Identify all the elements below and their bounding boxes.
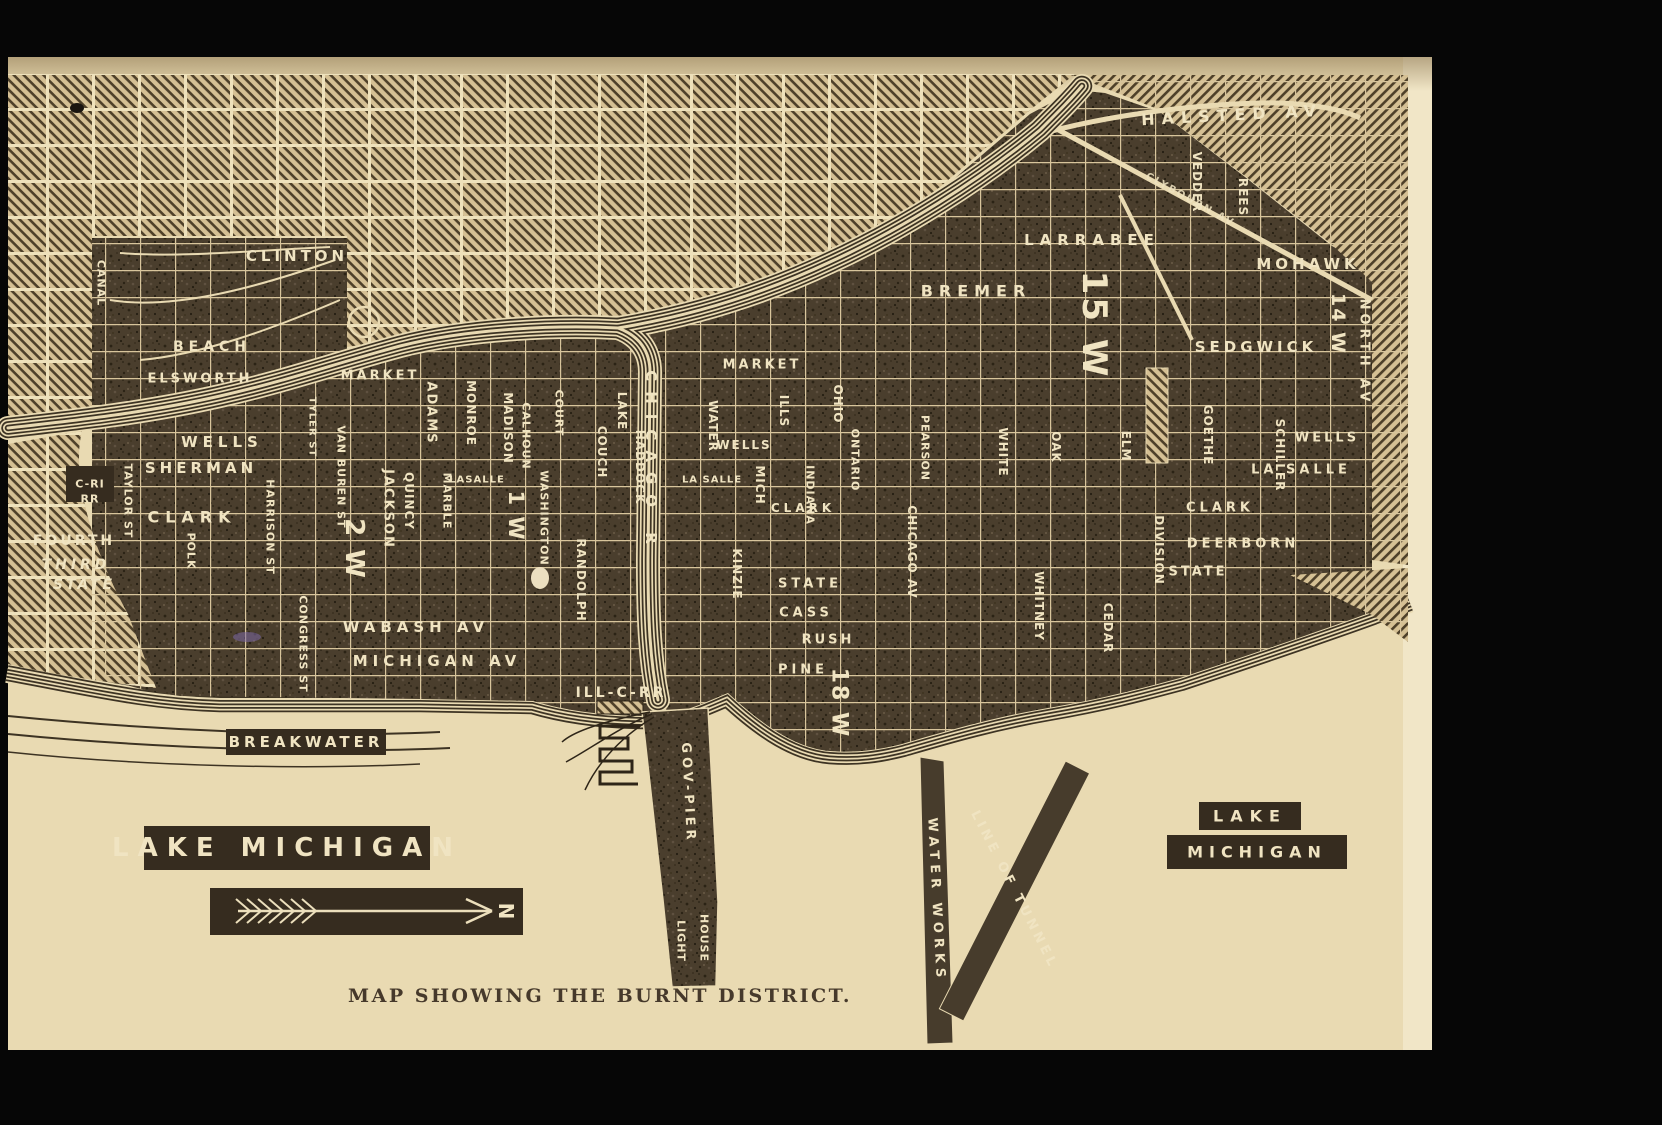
map-label-text: HOUSE xyxy=(698,914,711,962)
map-label-text: CALHOUN xyxy=(520,402,533,469)
map-label-michigan-ne: MICHIGAN xyxy=(1167,835,1347,869)
map-label-water: WATER xyxy=(706,400,720,452)
map-label-rees: REES xyxy=(1236,178,1250,216)
map-label-text: BREAKWATER xyxy=(229,733,384,751)
map-label-whitney: WHITNEY xyxy=(1032,571,1046,641)
map-label-state-west: STATE xyxy=(53,577,115,593)
map-label-text: QUINCY xyxy=(402,472,416,530)
map-label-ward-15: 15 W xyxy=(1074,271,1114,380)
map-label-wabash-av: WABASH AV xyxy=(343,618,489,636)
map-label-adams: ADAMS xyxy=(424,381,439,444)
map-label-text: C-RI xyxy=(75,478,104,491)
map-label-text: STATE xyxy=(778,577,842,592)
map-label-lake-ne: LAKE xyxy=(1199,802,1301,830)
map-label-ill-c-rr: ILL-C-RR xyxy=(576,685,667,701)
map-label-beach: BEACH xyxy=(173,339,251,355)
map-label-text: ONTARIO xyxy=(849,429,862,492)
map-label-text: WASHINGTON xyxy=(538,470,551,565)
railroad-depot-hatch xyxy=(597,701,643,714)
map-label-text: CLINTON xyxy=(246,247,348,265)
map-label-third: THIRD xyxy=(42,557,111,573)
map-label-pearson: PEARSON xyxy=(919,415,932,481)
map-label-mich: MICH xyxy=(753,465,767,504)
map-label-indiana: INDIANA xyxy=(804,465,817,525)
map-label-text: WATER xyxy=(706,400,720,452)
map-label-rush: RUSH xyxy=(802,633,855,648)
map-label-text: RR xyxy=(81,493,100,506)
map-label-text: BREMER xyxy=(921,282,1032,301)
map-label-cedar: CEDAR xyxy=(1101,603,1115,654)
map-label-mohawk: MOHAWK xyxy=(1256,255,1359,273)
map-label-kinzie: KINZIE xyxy=(730,548,744,599)
map-label-division: DIVISION xyxy=(1152,515,1166,585)
map-label-lasalle-south: LASALLE xyxy=(449,475,505,486)
map-label-chicago-av: CHICAGO AV xyxy=(905,505,919,598)
burnt-district-map: CLINTONBEACHELSWORTHMARKETWELLSSHERMANCL… xyxy=(0,0,1662,1125)
map-label-washington: WASHINGTON xyxy=(538,470,551,565)
map-label-couch: COUCH xyxy=(595,426,609,479)
map-label-text: 15 W xyxy=(1074,271,1114,380)
map-label-state-north: STATE xyxy=(1168,565,1227,580)
map-label-text: LAKE MICHIGAN xyxy=(112,833,462,863)
map-label-jackson: JACKSON xyxy=(381,468,396,549)
map-label-light: LIGHT xyxy=(675,920,688,962)
map-label-text: MICHIGAN xyxy=(1187,843,1327,862)
map-label-ohio: OHIO xyxy=(831,385,845,424)
map-label-lake-st: LAKE xyxy=(615,392,629,430)
map-label-text: SEDGWICK xyxy=(1195,338,1318,356)
map-label-text: LARRABEE xyxy=(1024,231,1160,249)
map-label-text: PINE xyxy=(778,663,828,678)
map-label-calhoun: CALHOUN xyxy=(520,402,533,469)
map-label-text: TAYLOR ST xyxy=(122,464,135,539)
map-label-polk: POLK xyxy=(185,533,198,570)
map-label-text: STATE xyxy=(1168,565,1227,580)
map-label-text: LASALLE xyxy=(449,475,505,486)
map-label-text: OHIO xyxy=(831,385,845,424)
map-label-quincy: QUINCY xyxy=(402,472,416,530)
map-label-ontario: ONTARIO xyxy=(849,429,862,492)
map-label-bremer: BREMER xyxy=(921,282,1032,301)
map-label-text: BEACH xyxy=(173,339,251,355)
map-label-text: ILL-C-RR xyxy=(576,685,667,701)
map-label-text: MADISON xyxy=(501,392,515,464)
map-label-monroe: MONROE xyxy=(464,380,478,446)
map-label-text: ELM xyxy=(1119,431,1133,462)
map-label-text: RUSH xyxy=(802,633,855,648)
map-label-text: POLK xyxy=(185,533,198,570)
map-label-text: INDIANA xyxy=(804,465,817,525)
map-label-wells-west: WELLS xyxy=(181,433,263,451)
map-label-text: 14 W xyxy=(1327,293,1349,355)
map-label-taylor-st: TAYLOR ST xyxy=(122,464,135,539)
map-label-market-west: MARKET xyxy=(341,369,420,384)
map-label-text: WELLS xyxy=(1295,431,1359,446)
map-label-text: 18 W xyxy=(827,668,852,739)
map-label-schiller: SCHILLER xyxy=(1273,419,1287,492)
map-label-lasalle-north: LA SALLE xyxy=(1251,463,1351,478)
map-label-text: RANDOLPH xyxy=(574,538,588,621)
map-label-sedgwick: SEDGWICK xyxy=(1195,338,1318,356)
map-label-text: COURT xyxy=(553,390,566,437)
map-label-text: CHICAGO AV xyxy=(905,505,919,598)
map-label-c-ri-rr-2: RR xyxy=(81,493,100,506)
map-label-text: WHITE xyxy=(996,427,1010,476)
map-label-text: CEDAR xyxy=(1101,603,1115,654)
map-label-text: CONGRESS ST xyxy=(297,595,310,692)
map-label-text: 1 W xyxy=(504,490,528,541)
map-label-text: CLARK xyxy=(1186,501,1254,516)
map-label-larrabee: LARRABEE xyxy=(1024,231,1160,249)
map-label-text: LA SALLE xyxy=(682,475,742,486)
pen-smudge xyxy=(233,632,261,642)
map-label-text: LAKE xyxy=(1213,807,1287,826)
ink-blot xyxy=(70,103,84,113)
map-label-state-center: STATE xyxy=(778,577,842,592)
map-label-fourth: FOURTH xyxy=(33,533,115,549)
map-label-clark-north: CLARK xyxy=(1186,501,1254,516)
map-label-text: OAK xyxy=(1049,431,1063,462)
map-label-text: COUCH xyxy=(595,426,609,479)
map-label-text: SHERMAN xyxy=(145,459,257,477)
map-label-market-center: MARKET xyxy=(723,358,802,373)
map-label-text: MONROE xyxy=(464,380,478,446)
map-label-text: DIVISION xyxy=(1152,515,1166,585)
map-label-sherman: SHERMAN xyxy=(145,459,257,477)
map-label-text: CASS xyxy=(779,606,833,621)
map-label-text: WABASH AV xyxy=(343,618,489,636)
map-label-text: SCHILLER xyxy=(1273,419,1287,492)
map-label-text: WELLS xyxy=(181,433,263,451)
map-label-michigan-av: MICHIGAN AV xyxy=(353,652,522,670)
map-label-text: WHITNEY xyxy=(1032,571,1046,641)
map-label-canal: CANAL xyxy=(95,260,108,306)
map-label-chicago-river: CHICAGO R xyxy=(642,370,660,554)
map-label-ward-1: 1 W xyxy=(504,490,528,541)
map-label-white: WHITE xyxy=(996,427,1010,476)
map-label-text: LIGHT xyxy=(675,920,688,962)
map-caption: MAP SHOWING THE BURNT DISTRICT. xyxy=(340,985,860,1007)
map-label-text: GOETHE xyxy=(1201,405,1215,466)
map-label-text: ELSWORTH xyxy=(147,372,252,387)
map-label-elsworth: ELSWORTH xyxy=(147,372,252,387)
map-label-congress-st: CONGRESS ST xyxy=(297,595,310,692)
map-label-text: NORTH AV xyxy=(1357,299,1372,406)
paper-blob xyxy=(531,567,549,589)
map-label-text: JACKSON xyxy=(381,468,396,549)
map-label-randolph: RANDOLPH xyxy=(574,538,588,621)
map-label-deerborn: DEERBORN xyxy=(1187,537,1299,552)
compass xyxy=(210,888,523,935)
map-label-text: DEERBORN xyxy=(1187,537,1299,552)
map-label-text: STATE xyxy=(53,577,115,593)
map-label-text: ADAMS xyxy=(424,381,439,444)
map-label-clinton: CLINTON xyxy=(246,247,348,265)
unburned-block-marker xyxy=(1146,368,1168,463)
map-label-goethe: GOETHE xyxy=(1201,405,1215,466)
map-label-cass: CASS xyxy=(779,606,833,621)
map-label-lasalle-center: LA SALLE xyxy=(682,475,742,486)
map-label-north-av: NORTH AV xyxy=(1357,299,1372,406)
map-label-text: FOURTH xyxy=(33,533,115,549)
map-label-van-buren-st: VAN BUREN ST xyxy=(335,425,348,528)
map-label-text: MICH xyxy=(753,465,767,504)
map-label-elm: ELM xyxy=(1119,431,1133,462)
map-label-text: THIRD xyxy=(42,557,111,573)
map-label-text: WELLS xyxy=(716,438,771,452)
map-label-text: KINZIE xyxy=(730,548,744,599)
map-label-oak: OAK xyxy=(1049,431,1063,462)
map-label-court: COURT xyxy=(553,390,566,437)
map-label-text: CHICAGO R xyxy=(642,370,660,554)
map-label-text: CLARK xyxy=(771,501,835,515)
map-label-clark-center: CLARK xyxy=(771,501,835,515)
map-label-text: MARKET xyxy=(341,369,420,384)
map-label-text: TYLER ST xyxy=(307,397,318,457)
map-label-wells-north: WELLS xyxy=(1295,431,1359,446)
map-label-text: HARRISON ST xyxy=(264,479,277,575)
map-label-lake-michigan-sw: LAKE MICHIGAN xyxy=(112,826,462,870)
map-label-text: REES xyxy=(1236,178,1250,216)
map-label-text: LAKE xyxy=(615,392,629,430)
map-label-ward-18: 18 W xyxy=(827,668,852,739)
map-label-ward-2: 2 W xyxy=(339,518,369,580)
map-label-wells-center: WELLS xyxy=(716,438,771,452)
map-label-compass-n: N xyxy=(494,903,518,920)
map-label-text: ILLS xyxy=(777,395,791,427)
map-label-madison: MADISON xyxy=(501,392,515,464)
map-label-ward-14: 14 W xyxy=(1327,293,1349,355)
map-label-text: N xyxy=(494,903,518,920)
map-label-text: 2 W xyxy=(339,518,369,580)
map-label-harrison-st: HARRISON ST xyxy=(264,479,277,575)
map-label-tyler-st: TYLER ST xyxy=(307,397,318,457)
map-label-text: VAN BUREN ST xyxy=(335,425,348,528)
scanned-map-page: CLINTONBEACHELSWORTHMARKETWELLSSHERMANCL… xyxy=(0,0,1662,1125)
map-label-text: LA SALLE xyxy=(1251,463,1351,478)
map-label-text: CANAL xyxy=(95,260,108,306)
map-label-text: MOHAWK xyxy=(1256,255,1359,273)
map-label-house: HOUSE xyxy=(698,914,711,962)
map-label-breakwater: BREAKWATER xyxy=(226,729,386,755)
map-label-clark-west: CLARK xyxy=(147,508,236,527)
map-label-pine: PINE xyxy=(778,663,828,678)
map-label-text: MARKET xyxy=(723,358,802,373)
map-label-ills: ILLS xyxy=(777,395,791,427)
map-label-text: MICHIGAN AV xyxy=(353,652,522,670)
map-label-text: PEARSON xyxy=(919,415,932,481)
map-label-text: CLARK xyxy=(147,508,236,527)
